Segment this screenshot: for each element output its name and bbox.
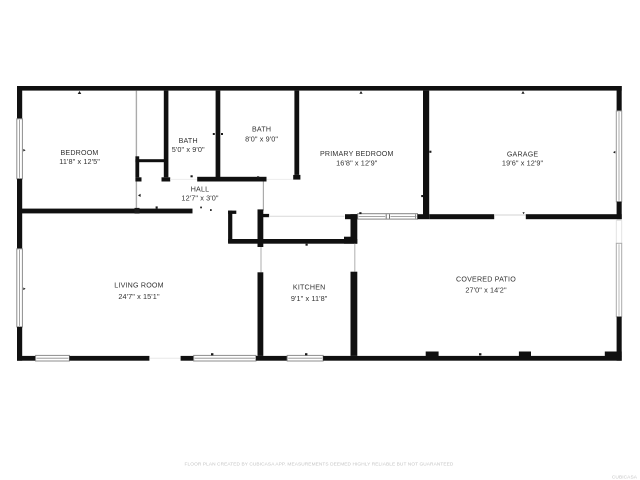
- svg-text:24'7" x 15'1": 24'7" x 15'1": [118, 292, 160, 301]
- svg-text:27'0" x 14'2": 27'0" x 14'2": [465, 285, 507, 294]
- svg-text:LIVING ROOM: LIVING ROOM: [114, 282, 164, 290]
- svg-text:BATH: BATH: [252, 126, 271, 134]
- svg-text:PRIMARY BEDROOM: PRIMARY BEDROOM: [320, 150, 394, 158]
- svg-text:16'8" x 12'9": 16'8" x 12'9": [336, 159, 378, 168]
- svg-text:KITCHEN: KITCHEN: [293, 283, 326, 291]
- svg-text:GARAGE: GARAGE: [507, 150, 539, 158]
- svg-text:COVERED PATIO: COVERED PATIO: [456, 275, 516, 283]
- svg-text:BATH: BATH: [179, 137, 198, 145]
- svg-text:8'0" x 9'0": 8'0" x 9'0": [245, 134, 278, 143]
- svg-text:FLOOR PLAN CREATED BY CUBICASA: FLOOR PLAN CREATED BY CUBICASA APP. MEAS…: [185, 462, 454, 468]
- svg-text:BEDROOM: BEDROOM: [60, 149, 98, 157]
- svg-text:11'8" x 12'5": 11'8" x 12'5": [59, 157, 100, 166]
- svg-text:19'6" x 12'9": 19'6" x 12'9": [502, 159, 544, 168]
- svg-text:12'7" x 3'0": 12'7" x 3'0": [181, 194, 218, 203]
- svg-text:CUBICASA: CUBICASA: [612, 475, 638, 480]
- svg-text:HALL: HALL: [191, 186, 210, 194]
- svg-text:9'1" x 11'8": 9'1" x 11'8": [291, 294, 328, 303]
- svg-text:5'0" x 9'0": 5'0" x 9'0": [172, 145, 205, 154]
